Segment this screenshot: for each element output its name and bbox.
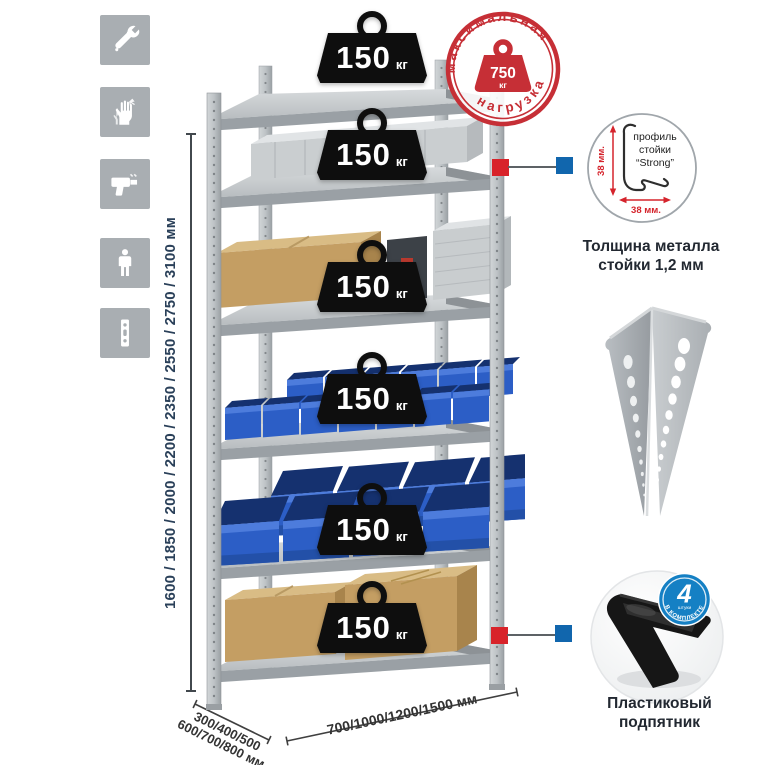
post-profile-callout: 38 мм. 38 мм. профиль стойки “Strong” bbox=[586, 112, 698, 224]
load-unit: кг bbox=[396, 154, 408, 169]
load-unit: кг bbox=[396, 57, 408, 72]
foot-caption: Пластиковый подпятник bbox=[592, 694, 727, 733]
load-value: 150 bbox=[336, 137, 391, 173]
included-count-badge: 4 штуки В КОМПЛЕКТЕ bbox=[657, 572, 712, 627]
stamp-unit: кг bbox=[499, 80, 507, 90]
gloves-icon bbox=[100, 87, 150, 137]
profile-caption: Толщина металла стойки 1,2 мм bbox=[572, 237, 730, 276]
load-value: 150 bbox=[336, 381, 391, 417]
load-value: 150 bbox=[336, 610, 391, 646]
badge-word: штуки bbox=[678, 606, 692, 611]
dim-horizontal-label: 38 мм. bbox=[631, 205, 661, 216]
profile-caption-line2: стойки 1,2 мм bbox=[572, 256, 730, 275]
profile-label-1: профиль bbox=[633, 131, 677, 143]
foot-caption-line2: подпятник bbox=[592, 713, 727, 732]
badge-value: 4 bbox=[676, 579, 692, 609]
foot-marker-blue bbox=[555, 625, 572, 642]
corner-post-photo bbox=[600, 298, 760, 533]
shelf-load-weight-5: 150кг bbox=[317, 483, 427, 555]
height-dimension-label: 1600 / 1850 / 2000 / 2200 / 2350 / 2550 … bbox=[162, 113, 182, 713]
shelf-load-weight-3: 150кг bbox=[317, 240, 427, 312]
shelf-load-weight-1: 150кг bbox=[317, 11, 427, 83]
foot-marker-red bbox=[491, 627, 508, 644]
load-unit: кг bbox=[396, 627, 408, 642]
profile-marker-blue bbox=[556, 157, 573, 174]
shelf-load-weight-2: 150кг bbox=[317, 108, 427, 180]
profile-label-2: стойки bbox=[639, 144, 671, 156]
shelf-load-weight-6: 150кг bbox=[317, 581, 427, 653]
load-value: 150 bbox=[336, 40, 391, 76]
shelf-load-weight-4: 150кг bbox=[317, 352, 427, 424]
profile-caption-line1: Толщина металла bbox=[572, 237, 730, 256]
load-unit: кг bbox=[396, 529, 408, 544]
person-icon bbox=[100, 238, 150, 288]
load-value: 150 bbox=[336, 512, 391, 548]
profile-label-3: “Strong” bbox=[636, 157, 674, 169]
foot-caption-line1: Пластиковый bbox=[592, 694, 727, 713]
profile-connector-line bbox=[508, 166, 558, 168]
foot-connector-line bbox=[507, 634, 557, 636]
load-value: 150 bbox=[336, 269, 391, 305]
load-unit: кг bbox=[396, 286, 408, 301]
wrench-icon bbox=[100, 15, 150, 65]
height-dimension-line bbox=[190, 133, 192, 692]
product-infographic: 1600 / 1850 / 2000 / 2200 / 2350 / 2550 … bbox=[0, 0, 765, 765]
post-strip-icon bbox=[100, 308, 150, 358]
drill-icon bbox=[100, 159, 150, 209]
profile-marker-red bbox=[492, 159, 509, 176]
load-unit: кг bbox=[396, 398, 408, 413]
dim-vertical-label: 38 мм. bbox=[596, 146, 607, 176]
